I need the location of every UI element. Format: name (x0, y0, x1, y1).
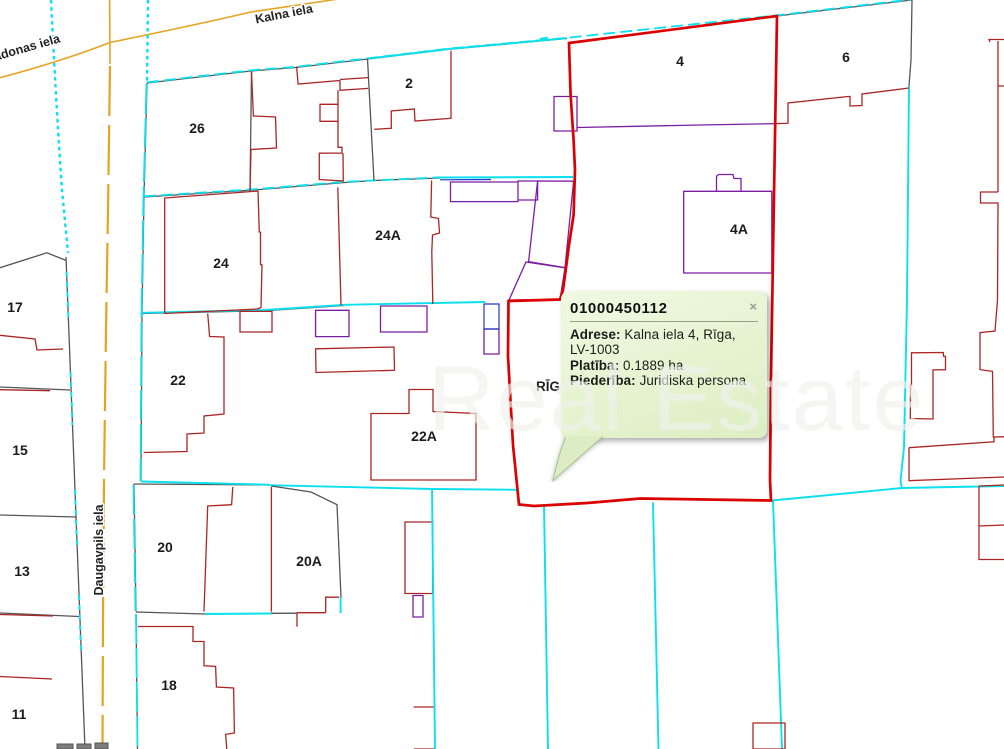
svg-text:Daugavpils iela: Daugavpils iela (92, 503, 106, 595)
svg-text:20A: 20A (296, 553, 322, 569)
svg-text:2: 2 (405, 75, 413, 91)
svg-text:24: 24 (213, 255, 229, 271)
svg-text:13: 13 (14, 563, 30, 579)
svg-text:11: 11 (12, 706, 27, 722)
svg-text:20: 20 (157, 539, 173, 555)
svg-text:18: 18 (161, 677, 177, 693)
svg-text:26: 26 (189, 120, 205, 136)
svg-text:22: 22 (170, 372, 186, 388)
svg-text:6: 6 (842, 49, 850, 65)
svg-text:Kalna iela: Kalna iela (254, 1, 315, 26)
svg-text:17: 17 (7, 299, 23, 315)
svg-text:24A: 24A (375, 227, 401, 243)
svg-text:4A: 4A (730, 221, 748, 237)
svg-text:4: 4 (676, 53, 684, 69)
svg-text:15: 15 (12, 442, 28, 458)
svg-text:Madonas iela: Madonas iela (0, 31, 63, 66)
